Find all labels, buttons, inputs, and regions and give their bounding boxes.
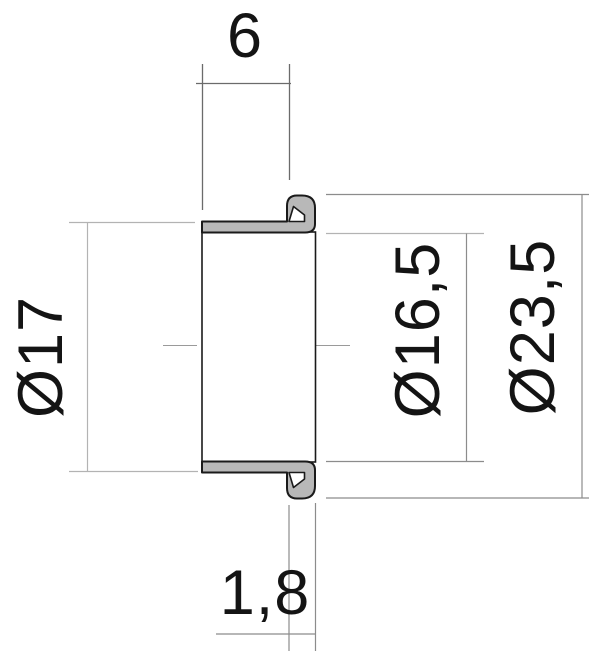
technical-drawing: 6 Ø17 Ø16,5 Ø23,5 1,8 [0,0,600,658]
dimension-label-flange: Ø23,5 [498,239,568,416]
dimension-label-width: 6 [227,1,263,71]
part-body-outline [202,232,316,462]
dimension-lip-thickness: 1,8 [216,503,316,651]
dimension-label-od: Ø17 [6,296,76,418]
drawing-canvas: 6 Ø17 Ø16,5 Ø23,5 1,8 [0,0,600,658]
dimension-inner-diameter: Ø16,5 [326,234,484,462]
dimension-outer-diameter: Ø17 [6,223,198,472]
dimension-flange-diameter: Ø23,5 [326,195,589,499]
dimension-label-lip: 1,8 [220,558,311,628]
dimension-label-id: Ø16,5 [383,242,453,419]
dimension-width: 6 [196,1,291,210]
